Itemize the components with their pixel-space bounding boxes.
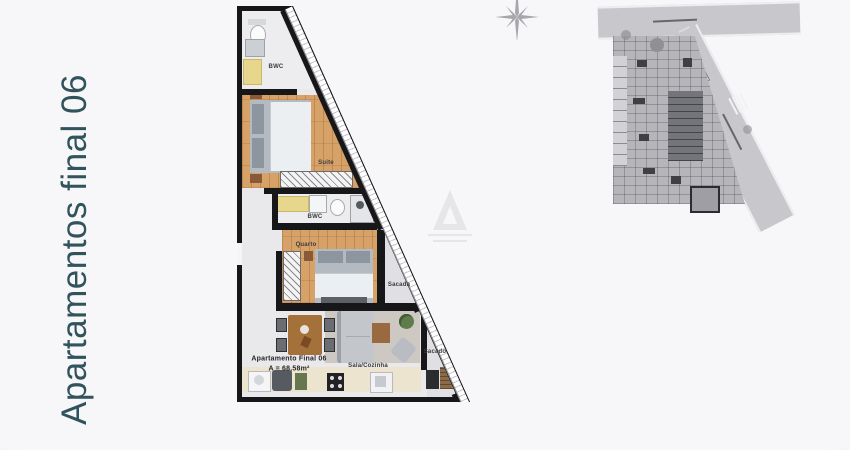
unit-detail bbox=[643, 168, 655, 174]
tree bbox=[650, 38, 664, 52]
highlighted-unit bbox=[668, 91, 703, 161]
unit-area: A = 68,58m² bbox=[268, 366, 309, 373]
watermark-line bbox=[433, 240, 467, 242]
unit-detail bbox=[683, 58, 692, 67]
parking-spots bbox=[613, 56, 627, 166]
label-bwc-top: BWC bbox=[269, 64, 284, 70]
builder-logo-watermark bbox=[424, 190, 476, 270]
label-suite: Suite bbox=[318, 160, 334, 166]
unit-detail bbox=[639, 134, 649, 141]
tree bbox=[743, 125, 752, 134]
unit-detail bbox=[633, 98, 645, 104]
unit-detail bbox=[637, 60, 647, 67]
site-key-plan bbox=[593, 0, 805, 232]
label-quarto: Quarto bbox=[296, 242, 317, 248]
watermark-a-inner bbox=[443, 206, 457, 224]
label-sacado: Sacado bbox=[424, 349, 447, 355]
label-sacada: Sacada bbox=[388, 282, 410, 288]
label-sala-cozinha: Sala/Cozinha bbox=[348, 363, 388, 369]
unit-name: Apartamento Final 06 bbox=[251, 356, 326, 363]
compass-star-icon bbox=[494, 0, 540, 40]
tree bbox=[621, 30, 631, 40]
street-name-text bbox=[653, 19, 697, 23]
watermark-line bbox=[428, 234, 472, 236]
stair-structure bbox=[690, 186, 720, 213]
screenshot-canvas: Apartamentos final 06 bbox=[0, 0, 850, 450]
page-title: Apartamentos final 06 bbox=[50, 55, 100, 445]
label-bwc-mid: BWC bbox=[308, 214, 323, 220]
unit-detail bbox=[671, 176, 681, 184]
